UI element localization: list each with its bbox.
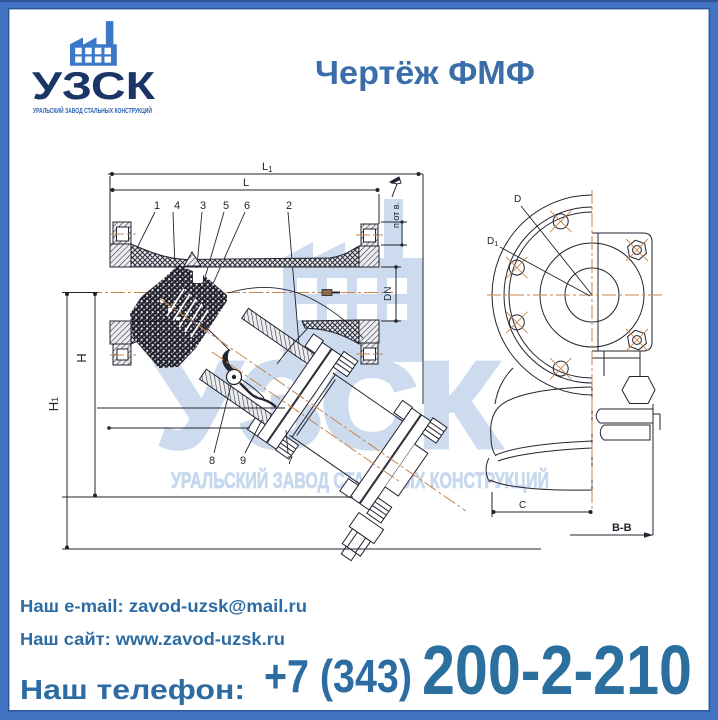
svg-text:Наш сайт: www.zavod-uzsk.ru: Наш сайт: www.zavod-uzsk.ru [20, 629, 285, 649]
svg-text:В-В: В-В [612, 522, 632, 534]
svg-text:Наш телефон:: Наш телефон: [20, 674, 245, 705]
svg-text:УРАЛЬСКИЙ ЗАВОД СТАЛЬНЫХ КОНСТ: УРАЛЬСКИЙ ЗАВОД СТАЛЬНЫХ КОНСТРУКЦИЙ [33, 106, 152, 115]
svg-text:1: 1 [154, 200, 160, 212]
svg-text:200-2-210: 200-2-210 [422, 631, 692, 709]
svg-text:п от в.: п от в. [391, 202, 401, 228]
svg-text:3: 3 [200, 200, 206, 212]
svg-text:+7 (343): +7 (343) [264, 650, 412, 702]
svg-text:C: C [519, 500, 526, 511]
svg-text:УЗСК: УЗСК [32, 65, 155, 108]
svg-text:5: 5 [223, 200, 229, 212]
svg-text:6: 6 [244, 200, 250, 212]
svg-text:9: 9 [240, 455, 246, 467]
svg-text:DN: DN [383, 287, 394, 301]
svg-text:L: L [243, 177, 249, 189]
svg-text:4: 4 [174, 200, 180, 212]
svg-text:Чертёж ФМФ: Чертёж ФМФ [315, 54, 535, 91]
svg-text:7: 7 [287, 455, 293, 467]
svg-text:Наш e-mail: zavod-uzsk@mail.ru: Наш e-mail: zavod-uzsk@mail.ru [20, 596, 307, 616]
svg-text:D: D [514, 194, 521, 205]
svg-text:8: 8 [209, 455, 215, 467]
svg-text:H: H [74, 353, 89, 362]
svg-text:2: 2 [286, 200, 292, 212]
